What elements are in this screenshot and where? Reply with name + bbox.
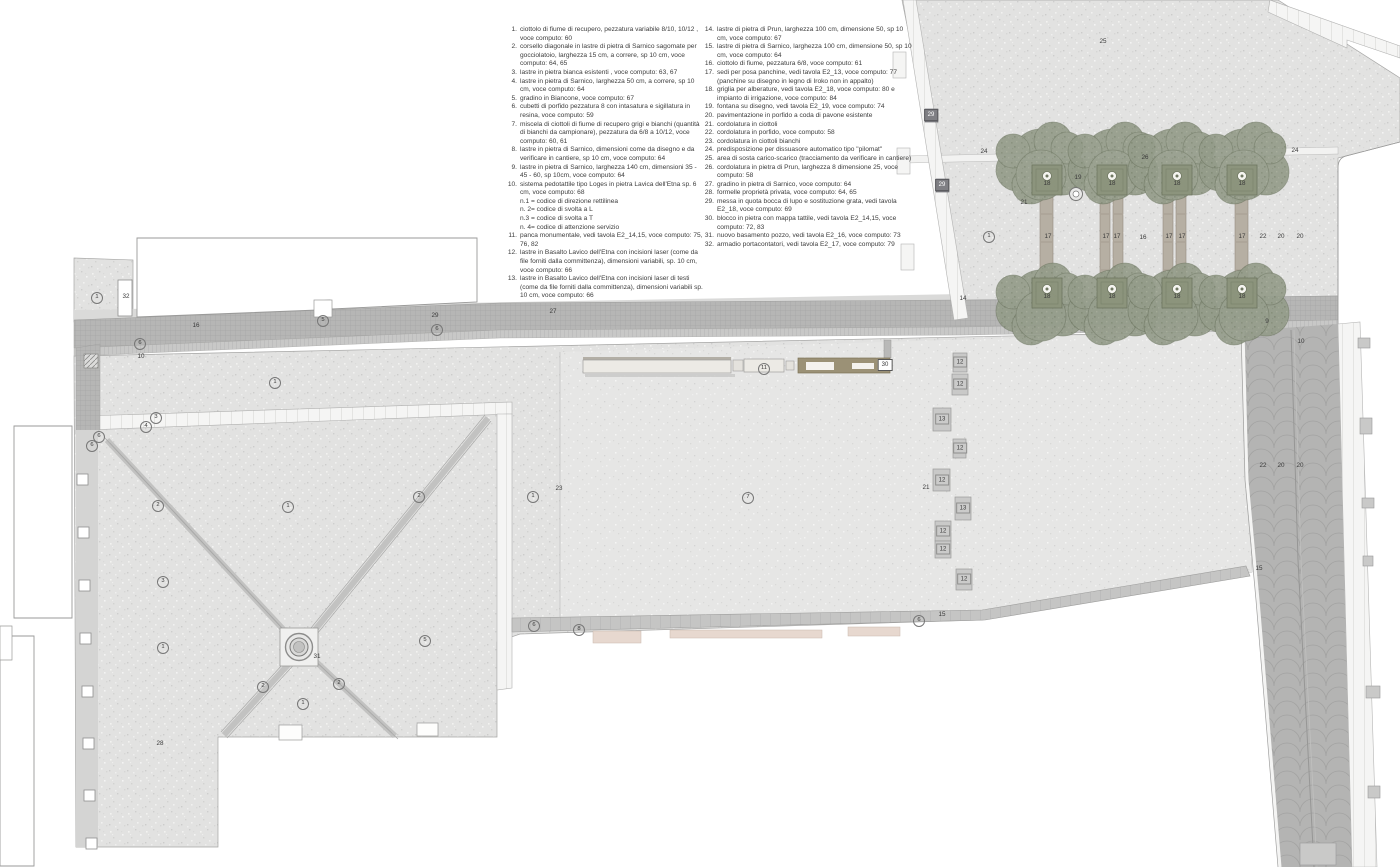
meter-cabinet-32 xyxy=(118,280,132,316)
legend-item: 24.predisposizione per dissuasore automa… xyxy=(700,146,912,155)
step-5 xyxy=(314,300,332,317)
legend-item: 5.gradino in Biancone, voce computo: 67 xyxy=(503,95,703,104)
fountain-19 xyxy=(1070,188,1083,201)
legend-item: 31.nuovo basamento pozzo, vedi tavola E2… xyxy=(700,232,912,241)
legend-item: 7.miscela di ciottoli di fiume di recupe… xyxy=(503,121,703,147)
legend-item: 20.pavimentazione in porfido a coda di p… xyxy=(700,112,912,121)
legend-item: 6.cubetti di porfido pezzatura 8 con int… xyxy=(503,103,703,120)
legend-item: 4.lastre in pietra di Sarnico, larghezza… xyxy=(503,78,703,95)
legend-item: 3.lastre in pietra bianca esistenti , vo… xyxy=(503,69,703,78)
legend-item: 12.lastre in Basalto Lavico dell'Etna co… xyxy=(503,249,703,275)
legend-item: n. 2= codice di svolta a L xyxy=(503,206,703,215)
legend-item: 23.cordolatura in ciottoli bianchi xyxy=(700,138,912,147)
legend-item: 17.sedi per posa panchine, vedi tavola E… xyxy=(700,69,912,86)
legend-item: 15.lastre di pietra di Sarnico, larghezz… xyxy=(700,43,912,60)
legend-column-2: 14.lastre di pietra di Prun, larghezza 1… xyxy=(700,26,912,249)
legend-item: n. 4= codice di attenzione servizio xyxy=(503,224,703,233)
legend-item: 13.lastre in Basalto Lavico dell'Etna co… xyxy=(503,275,703,301)
central-well xyxy=(280,628,318,666)
legend-item: 16.ciottolo di fiume, pezzatura 6/8, voc… xyxy=(700,60,912,69)
legend-item: 18.griglia per alberature, vedi tavola E… xyxy=(700,86,912,103)
tactile-map-block-30 xyxy=(798,358,890,373)
legend-item: 19.fontana su disegno, vedi tavola E2_19… xyxy=(700,103,912,112)
grate-29 xyxy=(936,179,949,192)
legend-item: 2.corsello diagonale in lastre di pietra… xyxy=(503,43,703,69)
legend-item: 14.lastre di pietra di Prun, larghezza 1… xyxy=(700,26,912,43)
legend-item: 22.cordolatura in porfido, voce computo:… xyxy=(700,129,912,138)
legend-item: 30.blocco in pietra con mappa tattile, v… xyxy=(700,215,912,232)
legend-column-1: 1.ciottolo di fiume di recupero, pezzatu… xyxy=(503,26,703,301)
legend-item: 10.sistema pedotattile tipo Loges in pie… xyxy=(503,181,703,198)
legend-item: 32.armadio portacontatori, vedi tavola E… xyxy=(700,241,912,250)
legend-item: 1.ciottolo di fiume di recupero, pezzatu… xyxy=(503,26,703,43)
legend-item: 8.lastre in pietra di Sarnico, dimension… xyxy=(503,146,703,163)
legend-item: 21.cordolatura in ciottoli xyxy=(700,121,912,130)
legend-item: n.1 = codice di direzione rettilinea xyxy=(503,198,703,207)
legend-item: 29.messa in quota bocca di lupo e sostit… xyxy=(700,198,912,215)
legend-item: 9.lastre in pietra di Sarnico, larghezza… xyxy=(503,164,703,181)
legend-item: 27.gradino in pietra di Sarnico, voce co… xyxy=(700,181,912,190)
legend-item: 11.panca monumentale, vedi tavola E2_14,… xyxy=(503,232,703,249)
legend-item: n.3 = codice di svolta a T xyxy=(503,215,703,224)
legend-item: 28.formelle proprietà privata, voce comp… xyxy=(700,189,912,198)
site-plan-page: { "colors":{"paving":"#e2e2e1","paving_l… xyxy=(0,0,1400,867)
legend-item: 25.area di sosta carico-scarico (traccia… xyxy=(700,155,912,164)
grate-29 xyxy=(925,109,938,122)
legend-item: 26.cordolatura in pietra di Prun, larghe… xyxy=(700,164,912,181)
